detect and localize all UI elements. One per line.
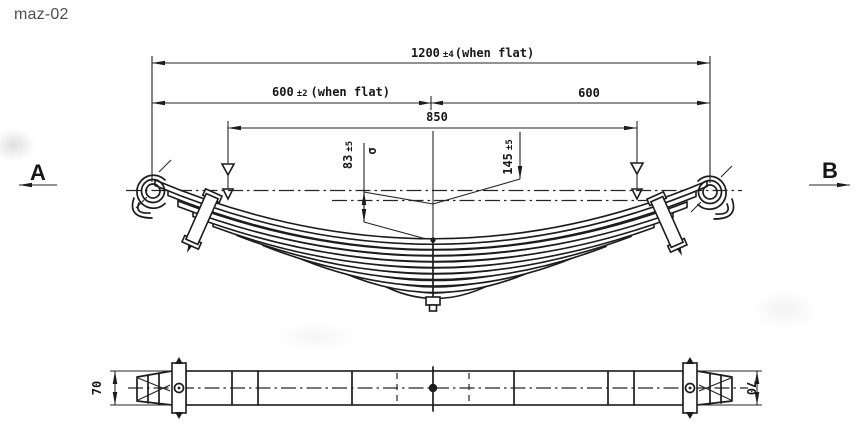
plan-clip-right [683, 357, 697, 419]
dim-load-span: 850 [228, 110, 637, 128]
dim-camber: 83±5 σ 145±5 [341, 132, 520, 240]
side-view: 1200±4(when flat) 600±2(when flat) 600 8… [126, 46, 742, 311]
section-marker-a: A [19, 160, 57, 185]
camber-symbol: σ [365, 147, 379, 154]
section-marker-b: B [809, 158, 850, 185]
spring-eye-right [691, 166, 734, 219]
plan-center-bolt [429, 384, 437, 392]
dim-overall-length: 1200±4(when flat) [152, 46, 710, 63]
plan-clip-left [172, 357, 186, 419]
dim-overall-text: 1200±4(when flat) [411, 46, 534, 60]
dim-half-lengths: 600±2(when flat) 600 [152, 85, 710, 110]
section-a-label: A [30, 160, 46, 185]
dim-width-left-text: 70 [90, 381, 104, 395]
leaf-spring-technical-drawing: 1200±4(when flat) 600±2(when flat) 600 8… [0, 0, 856, 430]
dim-left-half-text: 600±2(when flat) [272, 85, 390, 99]
plan-view: 70 70 [90, 357, 762, 419]
dim-right-half-text: 600 [578, 86, 600, 100]
dim-camber-right-text: 145±5 [501, 139, 515, 175]
dim-width-right-text: 70 [744, 381, 758, 395]
dim-load-span-text: 850 [426, 110, 448, 124]
section-b-label: B [822, 158, 838, 183]
dim-camber-left-text: 83±5 [341, 141, 355, 169]
